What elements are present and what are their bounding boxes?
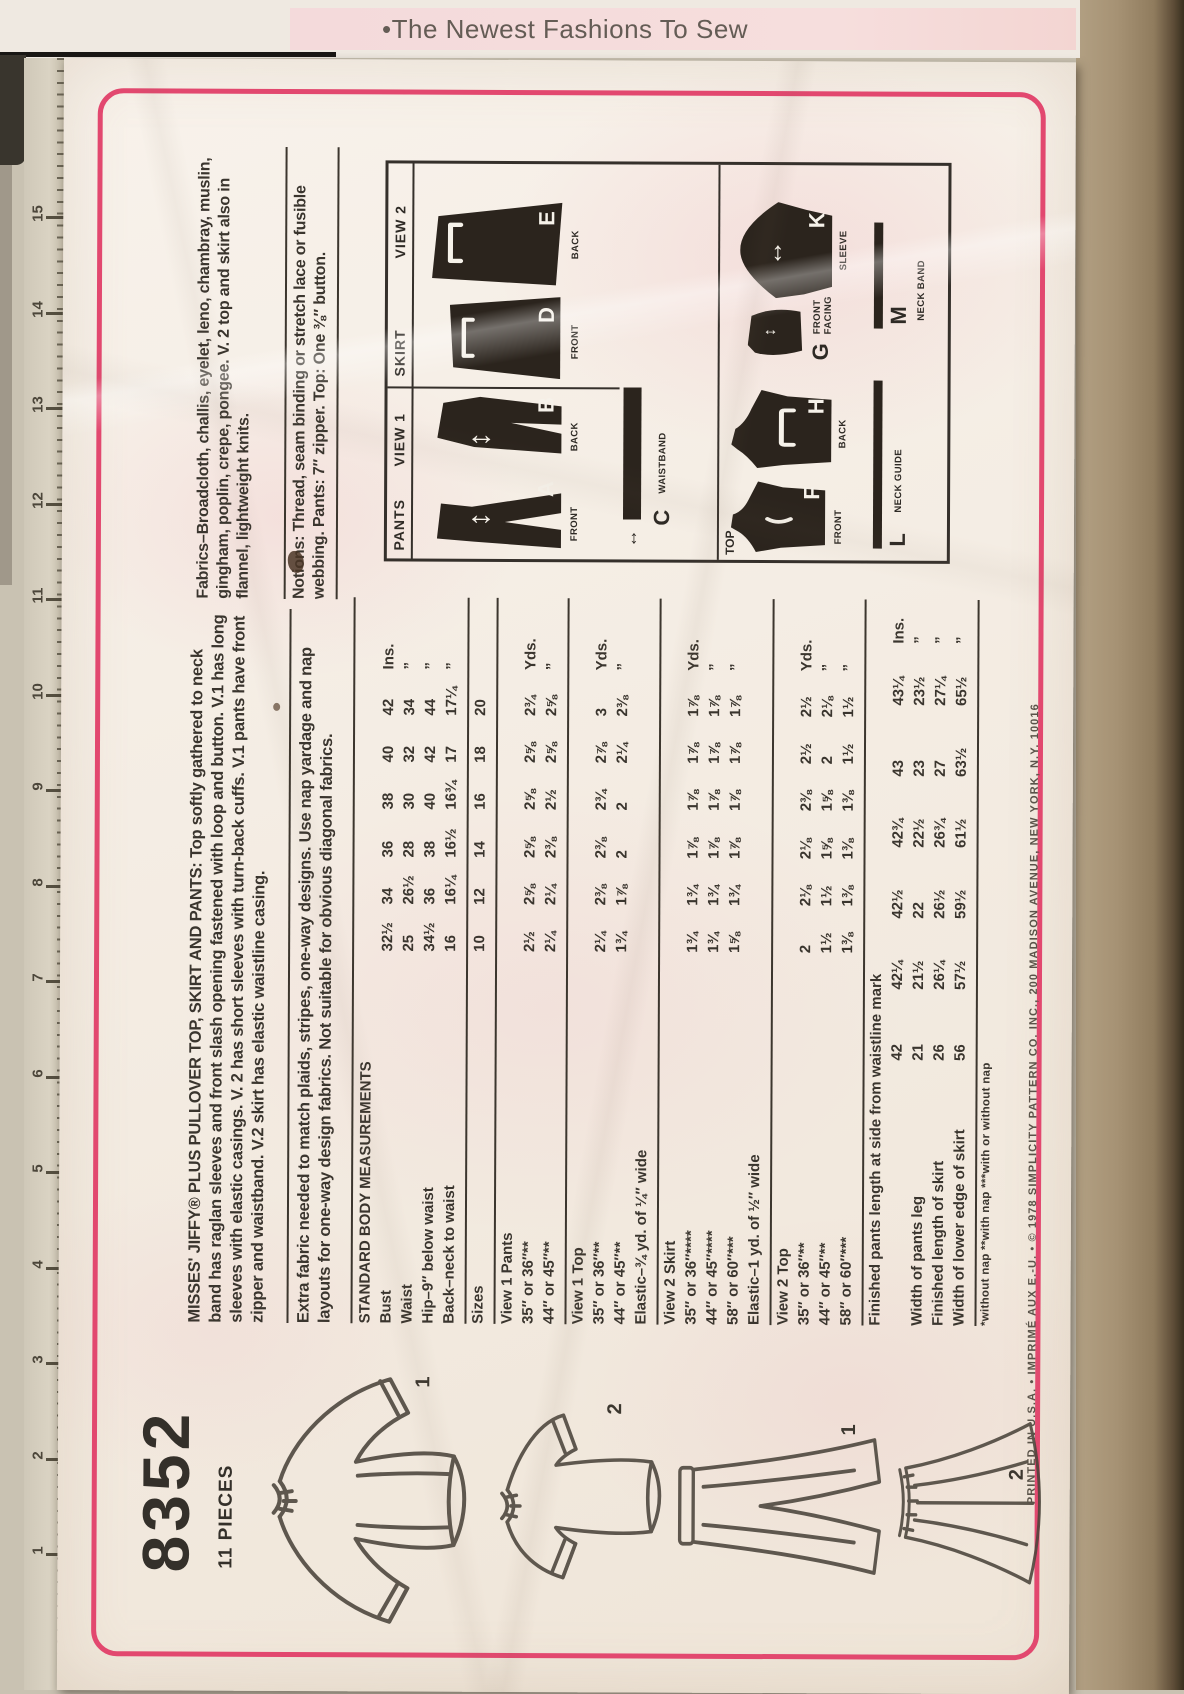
diagram-view2-label: VIEW 2: [392, 205, 408, 259]
cell-value: 1⅞: [706, 790, 723, 811]
cell-value: 21½: [910, 960, 927, 989]
cell-unit: ”: [543, 663, 560, 671]
row-label: Bust: [377, 1290, 394, 1323]
cell-value: 40: [422, 793, 439, 810]
piece-label: BACK: [837, 419, 848, 448]
cell-value: 12: [471, 888, 488, 905]
view-number: 2: [604, 1403, 627, 1414]
cell-value: 16: [472, 793, 489, 810]
garment-sketch-pants-view1: 1: [669, 1411, 888, 1602]
table-row: 44″ or 45″**2¼2¼2⅜2½2⅝2⅝”: [540, 598, 564, 1324]
cell-unit: Ins.: [380, 644, 397, 670]
cell-value: 1⅞: [727, 790, 744, 811]
cell-unit: ”: [422, 662, 439, 670]
cell-value: 2¾: [593, 789, 610, 810]
cell-value: 1⅞: [706, 696, 723, 717]
sizes-block: Sizes101214161820: [464, 598, 493, 1324]
tagline-text: •The Newest Fashions To Sew: [290, 14, 748, 45]
piece-letter: B: [533, 397, 559, 413]
piece-letter: E: [534, 211, 560, 226]
cell-value: 2⅝: [543, 695, 560, 716]
cell-value: 1⅞: [685, 696, 702, 717]
table-section: View 2 Skirt35″ or 36″****1¾1¾1⅞1⅞1⅞1⅞Yd…: [656, 599, 769, 1325]
diagram-piece-G: G↕FRONT FACING: [748, 304, 806, 358]
cell-value: 2⅞: [593, 742, 610, 763]
diagram-piece-A: A↕FRONT: [437, 475, 563, 552]
cell-value: 21: [910, 1044, 927, 1061]
cell-value: 44: [422, 699, 439, 716]
cell-value: 2¼: [592, 931, 609, 952]
piece-label: WAISTBAND: [657, 432, 668, 493]
cell-value: 2⅝: [522, 742, 539, 763]
ruler-number: 9: [30, 774, 47, 800]
piece-label: NECK BAND: [916, 260, 927, 321]
row-label: 35″ or 36″****: [682, 1230, 699, 1325]
table-row: Elastic–¾ yd. of ¼″ wide: [632, 598, 656, 1324]
table-section: Finished pants length at side from waist…: [861, 599, 974, 1325]
ruler-number: 3: [30, 1347, 47, 1373]
table-row: 58″ or 60″***1⅜1⅜1⅜1⅜1½1½”: [837, 599, 861, 1325]
notions-paragraph: Notions: Thread, seam binding or stretch…: [284, 147, 340, 599]
fabric-note-paragraph: Extra fabric needed to match plaids, str…: [286, 609, 338, 1323]
diagram-view1-label: VIEW 1: [391, 413, 407, 467]
table-row: Back–neck to waist1616¼16½16¾1717¼”: [440, 598, 464, 1324]
row-label: 35″ or 36″**: [519, 1241, 536, 1324]
cell-unit: ”: [840, 664, 857, 672]
cell-value: 42¾: [890, 818, 907, 847]
cell-value: 25: [400, 935, 417, 952]
cell-value: 10: [471, 935, 488, 952]
rotated-content: 8352 11 PIECES 1: [57, 58, 1076, 1694]
cell-value: 2½: [521, 931, 538, 952]
diagram-piece-F: FFRONT: [731, 480, 827, 552]
fabrics-paragraph: Fabrics–Broadcloth, challis, eyelet, len…: [194, 147, 256, 599]
grainline-arrow-icon: ↕: [463, 432, 497, 447]
diagram-divider: [388, 386, 620, 389]
cell-value: 2¾: [522, 695, 539, 716]
row-label: 44″ or 45″**: [816, 1243, 833, 1326]
row-label: *without nap **with nap ***with or witho…: [979, 1062, 992, 1326]
piece-letter: L: [885, 533, 911, 547]
cell-unit: Yds.: [593, 639, 610, 671]
cell-value: 1⅝: [819, 790, 836, 811]
cell-value: 34½: [421, 922, 438, 951]
cell-value: 1⅞: [706, 743, 723, 764]
description-title: MISSES' JIFFY® PLUS PULLOVER TOP, SKIRT …: [185, 862, 205, 1322]
cell-value: 38: [422, 841, 439, 858]
cell-value: 1½: [840, 744, 857, 765]
piece-letter: A: [533, 481, 559, 497]
cell-value: 61½: [953, 819, 970, 848]
cell-value: 3: [593, 708, 610, 716]
cell-value: 23½: [911, 676, 928, 705]
cell-value: 23: [911, 760, 928, 777]
scan-backing-right: [1076, 0, 1184, 1690]
table-section: View 2 Top35″ or 36″**22⅛2⅛2⅜2½2½Yds.44″…: [769, 599, 861, 1325]
row-label: Sizes: [469, 1285, 486, 1323]
row-label: Elastic–¾ yd. of ¼″ wide: [632, 1150, 650, 1325]
ruler-number: 8: [30, 869, 47, 895]
cell-value: 17¼: [443, 686, 460, 715]
piece-label: BACK: [569, 422, 580, 451]
diagram-piece-H: HBACK: [731, 390, 831, 468]
piece-letter: F: [799, 486, 825, 500]
pieces-count: 11 PIECES: [215, 1465, 237, 1569]
cell-value: 2⅛: [819, 696, 836, 717]
cell-value: 2⅜: [593, 837, 610, 858]
cell-value: 28: [401, 841, 418, 858]
cell-value: 43: [890, 760, 907, 777]
cell-value: 65½: [953, 677, 970, 706]
cell-value: 2⅝: [521, 884, 538, 905]
diagram-header: PANTS VIEW 1 SKIRT VIEW 2: [387, 163, 415, 558]
cell-value: 42½: [889, 889, 906, 918]
cell-value: 42: [422, 746, 439, 763]
scan-corner-artifact: [0, 55, 26, 165]
cell-value: 1⅜: [839, 933, 856, 954]
cell-value: 1⅜: [840, 839, 857, 860]
diagram-skirt-label: SKIRT: [392, 329, 408, 376]
tagline-band: •The Newest Fashions To Sew: [290, 8, 1076, 50]
cell-value: 1⅞: [727, 743, 744, 764]
cell-value: 63½: [953, 748, 970, 777]
ink-spot-artifact: [288, 551, 304, 573]
cell-value: 2: [797, 945, 814, 953]
cell-value: 1¾: [684, 932, 701, 953]
cell-value: 1⅞: [727, 696, 744, 717]
cell-value: 32½: [379, 922, 396, 951]
grainline-arrow-icon: ↕: [762, 328, 780, 336]
row-label: Finished length of skirt: [929, 1161, 947, 1326]
cell-unit: Yds.: [522, 638, 539, 670]
table-row: Width of lower edge of skirt5657½59½61½6…: [950, 600, 974, 1326]
piece-letter: H: [803, 398, 829, 414]
cell-value: 57½: [952, 961, 969, 990]
cell-value: 2⅝: [543, 742, 560, 763]
cell-value: 56: [952, 1044, 969, 1061]
diagram-piece-D: DFRONT: [450, 297, 564, 379]
cell-value: 26½: [931, 890, 948, 919]
cell-value: 2⅜: [543, 837, 560, 858]
cell-unit: Yds.: [798, 640, 815, 672]
ruler-number: 15: [30, 201, 47, 227]
piece-letter: M: [886, 306, 912, 324]
cell-value: 22: [910, 902, 927, 919]
row-label: STANDARD BODY MEASUREMENTS: [356, 1061, 374, 1323]
piece-label: FRONT: [569, 506, 580, 541]
cell-value: 17: [443, 746, 460, 763]
cell-value: 16½: [443, 828, 460, 857]
ruler-number: 11: [30, 583, 47, 609]
diagram-piece-M: [874, 223, 883, 329]
cell-value: 26¼: [931, 961, 948, 990]
diagram-piece-K: K↔SLEEVE: [740, 202, 832, 298]
table-row: *without nap **with nap ***with or witho…: [979, 600, 1003, 1326]
cell-value: 38: [380, 793, 397, 810]
diagram-pants-label: PANTS: [391, 499, 407, 550]
cell-value: 1½: [840, 697, 857, 718]
cell-value: 32: [401, 746, 418, 763]
row-label: View 2 Skirt: [661, 1241, 678, 1325]
cell-unit: Ins.: [890, 618, 907, 644]
cell-value: 20: [472, 699, 489, 716]
cell-value: 26¾: [932, 819, 949, 848]
diagram-piece-C: [623, 387, 642, 519]
table-section: View 1 Pants35″ or 36″**2½2⅝2⅝2⅝2⅝2¾Yds.…: [493, 598, 564, 1324]
cell-value: 27: [932, 760, 949, 777]
cell-unit: ”: [401, 662, 418, 670]
view-number: 1: [838, 1424, 861, 1435]
cell-value: 1⅞: [685, 838, 702, 859]
row-label: 44″ or 45″****: [703, 1230, 720, 1325]
piece-label: NECK GUIDE: [893, 449, 904, 513]
cell-unit: ”: [932, 636, 949, 644]
cell-value: 59½: [952, 890, 969, 919]
ruler-number: 7: [30, 965, 47, 991]
ruler-number: 10: [30, 678, 47, 704]
cell-value: 42¼: [889, 960, 906, 989]
cell-value: 18: [472, 746, 489, 763]
row-label: View 1 Top: [569, 1247, 586, 1324]
cell-unit: Yds.: [685, 639, 702, 671]
cell-value: 27¼: [932, 677, 949, 706]
row-label: View 1 Pants: [498, 1232, 515, 1324]
cell-value: 1¾: [726, 885, 743, 906]
cell-value: 14: [472, 841, 489, 858]
pattern-envelope-back: 8352 11 PIECES 1: [57, 58, 1076, 1694]
cell-value: 2: [819, 756, 836, 764]
cutting-layout-diagram: PANTS VIEW 1 SKIRT VIEW 2 TOP ↔ A↕FRONTB…: [384, 160, 952, 563]
cell-value: 2½: [798, 743, 815, 764]
ruler-number: 4: [30, 1251, 47, 1277]
table-row: Elastic–1 yd. of ½″ wide: [745, 599, 769, 1325]
description-paragraph: MISSES' JIFFY® PLUS PULLOVER TOP, SKIRT …: [184, 609, 271, 1323]
piece-letter: G: [808, 343, 834, 360]
cell-value: 2¼: [542, 931, 559, 952]
cell-value: 1¾: [684, 885, 701, 906]
cell-value: 1⅞: [727, 838, 744, 859]
scan-edge-artifact: [0, 165, 12, 585]
piece-letter: K: [804, 212, 830, 228]
ruler-number: 5: [30, 1156, 47, 1182]
diagram-piece-E: EBACK: [432, 201, 564, 288]
cell-value: 2⅛: [797, 885, 814, 906]
fabrics-label: Fabrics: [195, 543, 212, 599]
cell-value: 2⅜: [798, 790, 815, 811]
cell-value: 1⅝: [819, 838, 836, 859]
table-section: View 1 Top35″ or 36″**2¼2⅜2⅜2¾2⅞3Yds.44″…: [564, 598, 656, 1324]
garment-sketch-top-view2: 2: [485, 1390, 666, 1623]
cell-value: 2⅝: [522, 789, 539, 810]
row-label: Elastic–1 yd. of ½″ wide: [745, 1154, 763, 1325]
ruler-number: 12: [30, 487, 47, 513]
cell-value: 1⅞: [613, 885, 630, 906]
ruler-number: 6: [30, 1060, 47, 1086]
row-label: Back–neck to waist: [440, 1185, 458, 1323]
cell-value: 2⅜: [614, 696, 631, 717]
cell-value: 42: [889, 1044, 906, 1061]
piece-letter: D: [534, 307, 560, 323]
row-label: Waist: [398, 1284, 415, 1324]
row-label: 44″ or 45″**: [611, 1242, 628, 1325]
piece-label: FRONT FACING: [812, 296, 834, 334]
cell-value: 1⅜: [840, 791, 857, 812]
piece-label: FRONT: [833, 510, 844, 545]
ruler-number: 13: [30, 392, 47, 418]
cell-value: 36: [380, 841, 397, 858]
cell-unit: ”: [443, 662, 460, 670]
cell-value: 42: [380, 699, 397, 716]
cell-value: 2¼: [542, 884, 559, 905]
cell-unit: ”: [614, 663, 631, 671]
table-row: Sizes101214161820: [469, 598, 493, 1324]
cell-value: 1¾: [705, 885, 722, 906]
cell-value: 2¼: [614, 743, 631, 764]
cell-value: 16¾: [443, 780, 460, 809]
diagram-section-rule: [717, 165, 721, 560]
row-label: View 2 Top: [774, 1248, 791, 1325]
grainline-arrow-icon: ↔: [758, 240, 789, 266]
row-label: 35″ or 36″**: [590, 1242, 607, 1325]
cell-value: 36: [421, 888, 438, 905]
cell-unit: ”: [819, 664, 836, 672]
cell-value: 2½: [798, 696, 815, 717]
cell-value: 1½: [818, 932, 835, 953]
garment-sketch-skirt-view2: 2: [893, 1408, 1042, 1599]
row-label: 35″ or 36″**: [795, 1242, 812, 1325]
cell-value: 1⅞: [685, 743, 702, 764]
cell-unit: ”: [911, 636, 928, 644]
row-label: Hip–9″ below waist: [419, 1187, 437, 1323]
cell-value: 1½: [818, 885, 835, 906]
cell-value: 16: [442, 935, 459, 952]
piece-label: BACK: [570, 230, 581, 259]
cell-value: 43¼: [890, 676, 907, 705]
pattern-number: 8352: [127, 1409, 204, 1572]
row-label: 58″ or 60″***: [837, 1237, 854, 1326]
cell-value: 2⅜: [592, 884, 609, 905]
view-number: 1: [412, 1376, 435, 1387]
cell-unit: ”: [706, 663, 723, 671]
row-label: 44″ or 45″**: [540, 1241, 557, 1324]
cell-unit: ”: [953, 636, 970, 644]
cell-value: 2: [614, 802, 631, 810]
row-label: Width of pants leg: [908, 1196, 926, 1326]
cell-value: 1¾: [705, 932, 722, 953]
cell-value: 16¼: [442, 875, 459, 904]
ruler-number: 2: [30, 1442, 47, 1468]
cell-value: 1¾: [613, 932, 630, 953]
cell-value: 26½: [400, 875, 417, 904]
footnote-block: *without nap **with nap ***with or witho…: [974, 600, 1003, 1326]
row-label: Finished pants length at side from waist…: [866, 974, 885, 1326]
cell-value: 2⅛: [798, 838, 815, 859]
piece-label: FRONT: [570, 324, 581, 359]
diagram-piece-B: B↕BACK: [437, 391, 563, 468]
cell-value: 34: [401, 699, 418, 716]
scan-edge-line: [0, 52, 336, 57]
cell-value: 2: [614, 850, 631, 858]
fabrics-text: –Broadcloth, challis, eyelet, leno, cham…: [195, 157, 253, 598]
cell-value: 22½: [911, 818, 928, 847]
ink-spot-artifact: [273, 703, 280, 711]
cell-value: 34: [379, 888, 396, 905]
cell-value: 1⅞: [685, 790, 702, 811]
yardage-table: STANDARD BODY MEASUREMENTSBust32½3436384…: [350, 597, 1003, 1326]
cell-value: 26: [931, 1044, 948, 1061]
cell-unit: ”: [727, 663, 744, 671]
cell-value: 2½: [543, 789, 560, 810]
ruler-number: 1: [30, 1538, 47, 1564]
row-label: Width of lower edge of skirt: [950, 1129, 968, 1326]
cell-value: 40: [380, 746, 397, 763]
cell-value: 30: [401, 793, 418, 810]
ruler-number: 14: [30, 296, 47, 322]
cell-value: 1⅞: [706, 838, 723, 859]
grainline-arrow-icon: ↔: [621, 529, 642, 547]
cell-value: 1⅜: [839, 886, 856, 907]
diagram-piece-L: [873, 381, 883, 549]
cell-value: 1⅝: [726, 932, 743, 953]
piece-letter: C: [649, 510, 675, 526]
row-label: 58″ or 60″***: [724, 1236, 741, 1325]
cell-value: 2⅝: [522, 837, 539, 858]
grainline-arrow-icon: ↕: [463, 512, 497, 527]
garment-sketch-top-view1: 1: [253, 1363, 474, 1640]
piece-label: SLEEVE: [838, 230, 849, 270]
